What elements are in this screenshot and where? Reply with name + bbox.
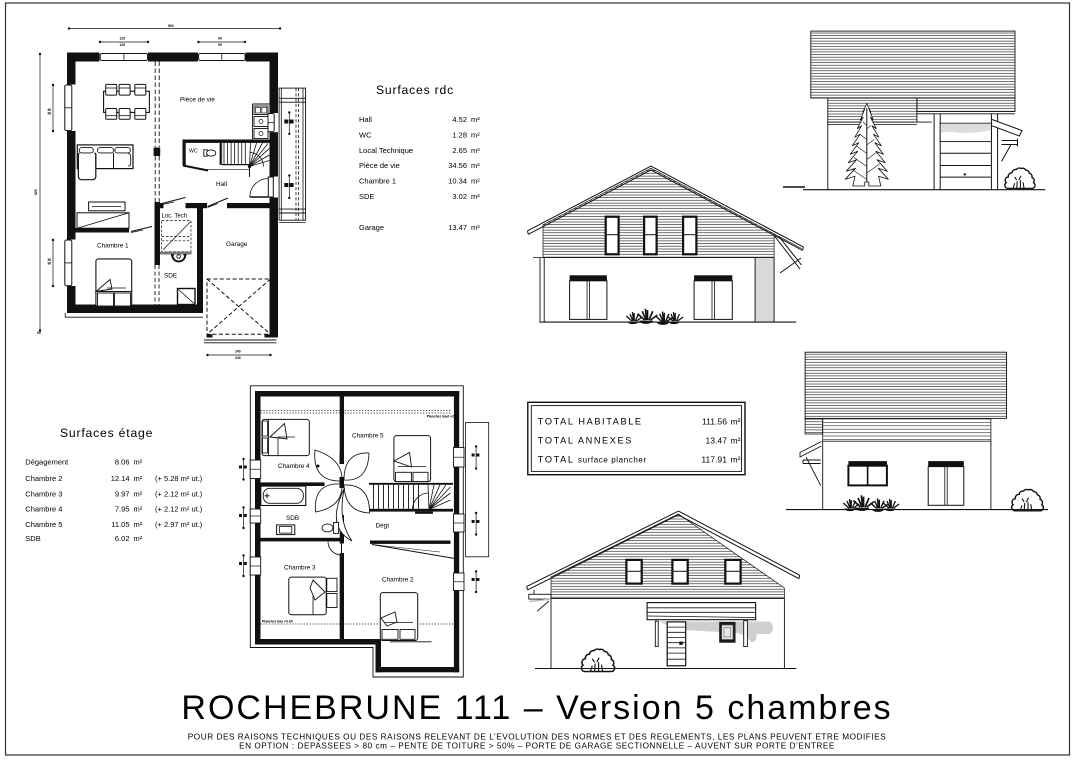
svg-text:Chambre 5: Chambre 5 — [25, 520, 62, 529]
svg-text:SDE: SDE — [359, 192, 374, 201]
svg-text:ROCHEBRUNE 111 – Version 5 cha: ROCHEBRUNE 111 – Version 5 chambres — [181, 689, 892, 727]
svg-text:Chambre 3: Chambre 3 — [284, 565, 316, 572]
svg-text:EN OPTION : DEPASSEES > 80 cm: EN OPTION : DEPASSEES > 80 cm – PENTE DE… — [239, 742, 835, 751]
svg-text:Surfaces rdc: Surfaces rdc — [376, 83, 454, 97]
svg-text:m²: m² — [471, 177, 480, 186]
svg-text:m²: m² — [471, 130, 480, 139]
svg-text:m²: m² — [134, 458, 143, 467]
svg-text:90: 90 — [48, 112, 52, 116]
svg-text:m²: m² — [471, 115, 480, 124]
svg-text:8.06: 8.06 — [115, 458, 130, 467]
svg-text:Plancher bas +0.00: Plancher bas +0.00 — [262, 620, 293, 624]
svg-text:240: 240 — [235, 350, 241, 354]
svg-text:m²: m² — [471, 146, 480, 155]
svg-text:TOTAL: TOTAL — [538, 455, 575, 465]
svg-text:m²: m² — [134, 505, 143, 514]
svg-text:m²: m² — [134, 520, 143, 529]
svg-text:Hall: Hall — [359, 115, 372, 124]
svg-text:117.91: 117.91 — [701, 455, 727, 465]
svg-text:Surfaces étage: Surfaces étage — [60, 426, 153, 440]
svg-text:6.02: 6.02 — [115, 534, 130, 543]
svg-text:TOTAL HABITABLE: TOTAL HABITABLE — [538, 417, 643, 427]
svg-text:SDB: SDB — [286, 515, 299, 522]
svg-text:90: 90 — [218, 37, 222, 41]
svg-text:240: 240 — [235, 356, 241, 360]
svg-text:Chambre 3: Chambre 3 — [25, 489, 62, 498]
svg-text:Chambre 1: Chambre 1 — [97, 243, 129, 250]
svg-text:Dégagement: Dégagement — [25, 458, 69, 467]
svg-text:Chambre 2: Chambre 2 — [25, 474, 62, 483]
svg-text:1.28: 1.28 — [452, 130, 467, 139]
svg-text:7.95: 7.95 — [115, 505, 130, 514]
svg-text:800: 800 — [168, 24, 174, 28]
svg-text:Chambre 2: Chambre 2 — [382, 577, 414, 584]
svg-text:Chambre 1: Chambre 1 — [359, 177, 396, 186]
svg-text:Chambre 4: Chambre 4 — [25, 505, 62, 514]
svg-text:TOTAL ANNEXES: TOTAL ANNEXES — [538, 436, 633, 446]
svg-text:Loc. Tech: Loc. Tech — [162, 214, 188, 220]
svg-text:WC: WC — [189, 149, 198, 155]
svg-text:m²: m² — [731, 455, 741, 465]
svg-text:surface plancher: surface plancher — [578, 456, 647, 465]
svg-text:POUR DES RAISONS TECHNIQUES OU: POUR DES RAISONS TECHNIQUES OU DES RAISO… — [188, 733, 886, 742]
svg-text:120: 120 — [120, 37, 126, 41]
svg-text:Plancher haut +2.58: Plancher haut +2.58 — [427, 415, 459, 419]
svg-text:m²: m² — [471, 161, 480, 170]
svg-text:34.56: 34.56 — [448, 161, 467, 170]
svg-text:SDB: SDB — [25, 534, 40, 543]
svg-text:m²: m² — [471, 223, 480, 232]
svg-text:90: 90 — [48, 262, 52, 266]
svg-text:(+ 2.97 m² ut.): (+ 2.97 m² ut.) — [155, 520, 203, 529]
svg-text:(+ 5.28 m² ut.): (+ 5.28 m² ut.) — [155, 474, 203, 483]
svg-text:825: 825 — [34, 189, 38, 195]
svg-text:Dégt: Dégt — [376, 523, 390, 530]
svg-text:m²: m² — [134, 474, 143, 483]
svg-text:13.47: 13.47 — [705, 436, 727, 446]
svg-text:2.65: 2.65 — [452, 146, 467, 155]
svg-text:11.05: 11.05 — [111, 520, 129, 529]
svg-text:Pièce de vie: Pièce de vie — [180, 97, 215, 104]
svg-text:Chambre 4: Chambre 4 — [278, 463, 310, 470]
svg-text:Garage: Garage — [359, 223, 384, 232]
svg-text:(+ 2.12 m² ut.): (+ 2.12 m² ut.) — [155, 489, 203, 498]
svg-text:90: 90 — [218, 43, 222, 47]
svg-text:111.56: 111.56 — [702, 417, 727, 427]
svg-text:Chambre 5: Chambre 5 — [352, 433, 384, 440]
svg-text:m²: m² — [731, 436, 741, 446]
svg-text:50: 50 — [37, 331, 41, 335]
svg-text:m²: m² — [471, 192, 480, 201]
svg-text:13.47: 13.47 — [448, 223, 467, 232]
svg-text:(+ 2.12 m² ut.): (+ 2.12 m² ut.) — [155, 505, 203, 514]
svg-text:12.14: 12.14 — [111, 474, 130, 483]
svg-text:10.34: 10.34 — [448, 177, 467, 186]
svg-text:SDE: SDE — [164, 273, 177, 280]
svg-text:m²: m² — [134, 534, 143, 543]
svg-text:Garage: Garage — [226, 241, 248, 248]
svg-text:3.02: 3.02 — [452, 192, 467, 201]
svg-text:m²: m² — [731, 417, 741, 427]
svg-text:Local Technique: Local Technique — [359, 146, 413, 155]
svg-text:9.97: 9.97 — [115, 489, 130, 498]
svg-text:4.52: 4.52 — [452, 115, 467, 124]
svg-text:Hall: Hall — [216, 181, 227, 188]
svg-text:120: 120 — [120, 43, 126, 47]
svg-text:WC: WC — [359, 130, 372, 139]
svg-text:m²: m² — [134, 489, 143, 498]
svg-text:Pièce de vie: Pièce de vie — [359, 161, 400, 170]
